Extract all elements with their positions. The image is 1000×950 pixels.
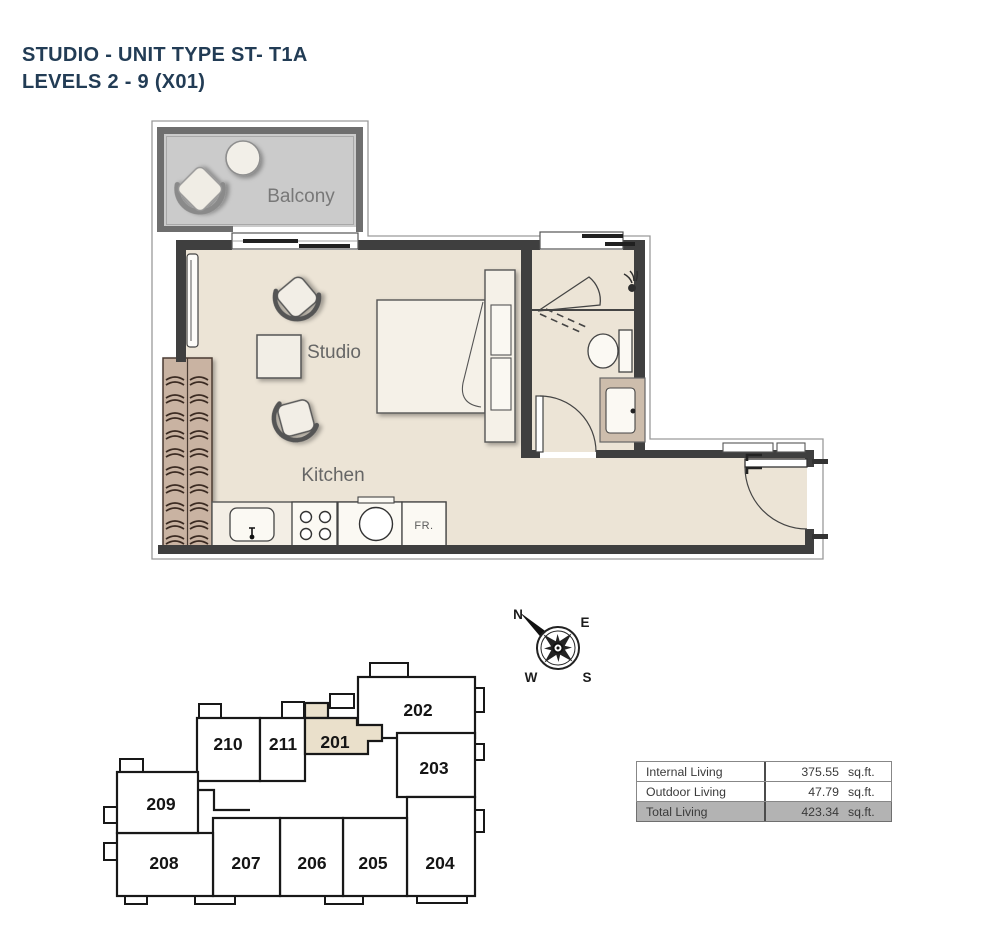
bathroom-window xyxy=(540,232,635,249)
studio-label: Studio xyxy=(307,342,361,363)
compass-e-label: E xyxy=(580,615,589,630)
corridor-cabinet-2 xyxy=(777,443,805,452)
corridor-cabinet-1 xyxy=(723,443,773,452)
jamb-tick-top xyxy=(812,459,828,464)
unit-207-label: 207 xyxy=(231,853,260,873)
balcony: Balcony xyxy=(157,127,363,232)
balcony-wall-top xyxy=(157,127,363,134)
unit-210-label: 210 xyxy=(213,734,242,754)
unit-201-label: 201 xyxy=(320,732,349,752)
row-value: 375.55 xyxy=(766,765,839,779)
tv xyxy=(187,254,198,347)
kitchen-counter: FR. xyxy=(212,497,446,549)
unit-floor-plan: Balcony xyxy=(152,121,828,559)
row-unit: sq.ft. xyxy=(839,785,891,799)
compass-rose: N E W S xyxy=(506,597,592,685)
vanity-sink xyxy=(600,378,645,442)
compass-s-label: S xyxy=(582,670,591,685)
compass-w-label: W xyxy=(525,670,538,685)
unit-203-label: 203 xyxy=(419,758,448,778)
balcony-table xyxy=(226,141,260,175)
wardrobe xyxy=(163,358,212,546)
kitchen-sink xyxy=(230,508,274,541)
key-plan: 201 202 203 204 205 206 207 208 209 210 … xyxy=(104,663,484,904)
unit-202-label: 202 xyxy=(403,700,432,720)
side-table xyxy=(257,335,301,378)
compass-n-label: N xyxy=(513,607,523,622)
balcony-label: Balcony xyxy=(267,186,335,207)
unit-204-label: 204 xyxy=(425,853,454,873)
table-row-total: Total Living 423.34 sq.ft. xyxy=(636,802,892,822)
unit-211-label: 211 xyxy=(269,734,297,754)
row-unit: sq.ft. xyxy=(839,805,891,819)
headboard xyxy=(485,270,515,442)
row-unit: sq.ft. xyxy=(839,765,891,779)
corridor-floor xyxy=(521,458,807,547)
key-unit-204 xyxy=(407,797,475,896)
unit-208-label: 208 xyxy=(149,853,178,873)
key-corridor-jog xyxy=(198,790,250,810)
row-value: 47.79 xyxy=(766,785,839,799)
area-summary-table: Internal Living 375.55 sq.ft. Outdoor Li… xyxy=(636,761,892,822)
balcony-window xyxy=(232,233,358,249)
stove xyxy=(292,502,337,549)
unit-206-label: 206 xyxy=(297,853,326,873)
floor-plan-page: STUDIO - UNIT TYPE ST- T1A LEVELS 2 - 9 … xyxy=(0,0,1000,950)
table-row-outdoor: Outdoor Living 47.79 sq.ft. xyxy=(636,782,892,802)
row-label: Internal Living xyxy=(637,762,766,781)
unit-209-label: 209 xyxy=(146,794,175,814)
balcony-wall-bottom xyxy=(157,226,233,232)
balcony-wall-right xyxy=(356,127,363,232)
row-value: 423.34 xyxy=(766,805,839,819)
table-row-internal: Internal Living 375.55 sq.ft. xyxy=(636,761,892,782)
row-label: Outdoor Living xyxy=(637,782,766,801)
toilet xyxy=(588,330,632,372)
fridge: FR. xyxy=(402,502,446,549)
fridge-label: FR. xyxy=(414,520,433,532)
kitchen-label: Kitchen xyxy=(301,465,364,486)
washing-machine xyxy=(338,497,402,549)
row-label: Total Living xyxy=(637,802,766,821)
jamb-tick-bottom xyxy=(812,534,828,539)
balcony-wall-left xyxy=(157,127,164,232)
unit-205-label: 205 xyxy=(358,853,387,873)
